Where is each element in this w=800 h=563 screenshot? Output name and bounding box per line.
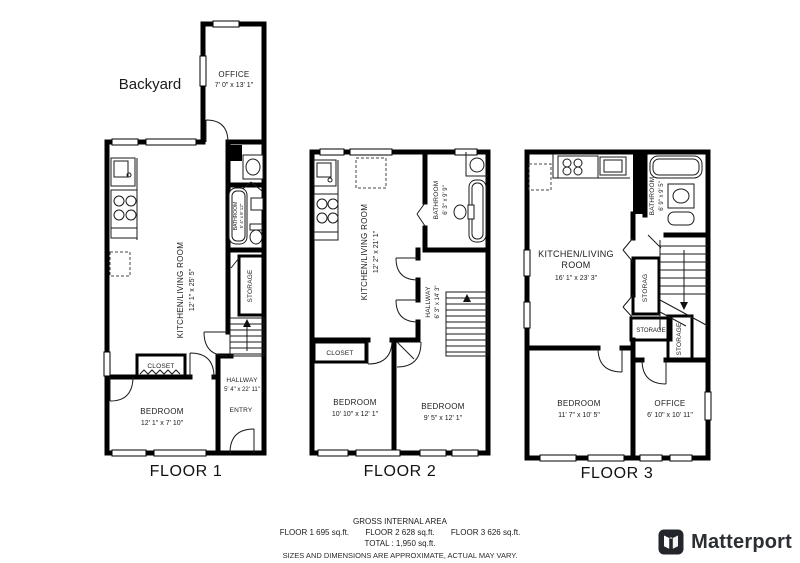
bedroom-dims: 12' 1" x 7' 10"	[141, 420, 184, 427]
kitchen-living-name: KITCHEN/LIVING ROOM	[176, 242, 185, 338]
storage-mid-label: STORAGE	[636, 328, 665, 334]
kitchen-living-dims: 12' 1" x 25' 5"	[189, 268, 196, 311]
hallway-name: HALLWAY	[226, 377, 258, 384]
fridge-outline	[110, 252, 130, 276]
office-dims: 7' 0" x 13' 1"	[215, 82, 254, 89]
storage-upper-label: STORAG	[642, 274, 649, 303]
floor2-area: FLOOR 2 628 sq.ft.	[365, 528, 434, 537]
bedroom-name: BEDROOM	[140, 407, 183, 416]
kitchen-sink	[111, 158, 135, 186]
floor2-title: FLOOR 2	[364, 463, 437, 480]
storage-label: STORAGE	[247, 269, 254, 303]
bathroom-dims: 6' 9" x 9' 5"	[659, 181, 665, 211]
skylight-outline	[529, 164, 551, 190]
kitchen-living-name: KITCHEN/LIVING ROOM	[360, 204, 369, 300]
floor1-title: FLOOR 1	[150, 463, 223, 480]
bedroom-right-name: BEDROOM	[421, 402, 464, 411]
kitchen-living-dims: 12' 2" x 21' 1"	[373, 230, 380, 273]
floor-plan-1: Backyard OFFICE 7' 0" x 13' 1" KITCHEN/L…	[104, 21, 264, 480]
floor3-fixtures	[529, 154, 702, 225]
bath-sink	[668, 184, 694, 208]
bedroom-right-dims: 9' 5" x 12' 1"	[424, 415, 463, 422]
floor-plan-3: KITCHEN/LIVING ROOM 16' 1" x 23' 3" BATH…	[524, 152, 711, 482]
bathroom-dims: 6' 3" x 9' 9"	[443, 185, 449, 215]
toilet	[668, 212, 694, 225]
closet-label: CLOSET	[147, 363, 174, 370]
toilet	[454, 205, 466, 219]
closet-rail	[140, 370, 180, 374]
bedroom-left-dims: 10' 10" x 12' 1"	[332, 411, 379, 418]
bedroom-name: BEDROOM	[557, 399, 600, 408]
floor3-area: FLOOR 3 626 sq.ft.	[451, 528, 520, 537]
floor2-fixtures	[314, 152, 488, 242]
floor1-stairs	[230, 318, 264, 356]
kitchen-living-dims: 16' 1" x 23' 3"	[555, 275, 598, 282]
matterport-icon	[658, 529, 684, 555]
floor-plan-2: KITCHEN/LIVING ROOM 12' 2" x 21' 1" BATH…	[312, 149, 488, 480]
backyard-label: Backyard	[119, 76, 182, 93]
office-dims: 6' 10" x 10' 11"	[647, 412, 693, 419]
entry-label: ENTRY	[230, 407, 253, 414]
hallway-dims: 5' 4" x 22' 11"	[224, 387, 260, 393]
floor2-stairs	[446, 292, 488, 356]
closet-label: CLOSET	[326, 350, 353, 357]
bathroom-name: BATHROOM	[433, 181, 440, 220]
gross-area-title: GROSS INTERNAL AREA	[0, 517, 800, 526]
bedroom-dims: 11' 7" x 10' 5"	[558, 412, 600, 419]
office-name: OFFICE	[654, 399, 685, 408]
floor1-area: FLOOR 1 695 sq.ft.	[280, 528, 349, 537]
kitchen-living-name-line2: ROOM	[561, 260, 590, 270]
skylight-outline	[356, 158, 386, 188]
hallway-dims: 6' 3" x 14' 3"	[435, 286, 441, 319]
floor-plans-canvas: Backyard OFFICE 7' 0" x 13' 1" KITCHEN/L…	[0, 0, 800, 563]
floor3-title: FLOOR 3	[581, 465, 654, 482]
bath-sink	[470, 158, 484, 172]
storage-lower-label: STORAGE	[676, 322, 683, 356]
bedroom-left-name: BEDROOM	[333, 398, 376, 407]
matterport-logo: Matterport	[658, 529, 792, 555]
matterport-wordmark: Matterport	[691, 531, 792, 554]
hallway-name: HALLWAY	[425, 286, 432, 318]
bath-sink	[251, 198, 263, 210]
kitchen-living-name-line1: KITCHEN/LIVING	[538, 249, 614, 259]
toilet-tank	[468, 205, 474, 219]
bathroom-name: BATHROOM	[649, 177, 656, 216]
toilet	[250, 230, 262, 244]
bathroom-dims: 5' 4" x 8' 12"	[239, 203, 244, 228]
toilet-tank	[250, 224, 262, 230]
office-name: OFFICE	[218, 70, 249, 79]
